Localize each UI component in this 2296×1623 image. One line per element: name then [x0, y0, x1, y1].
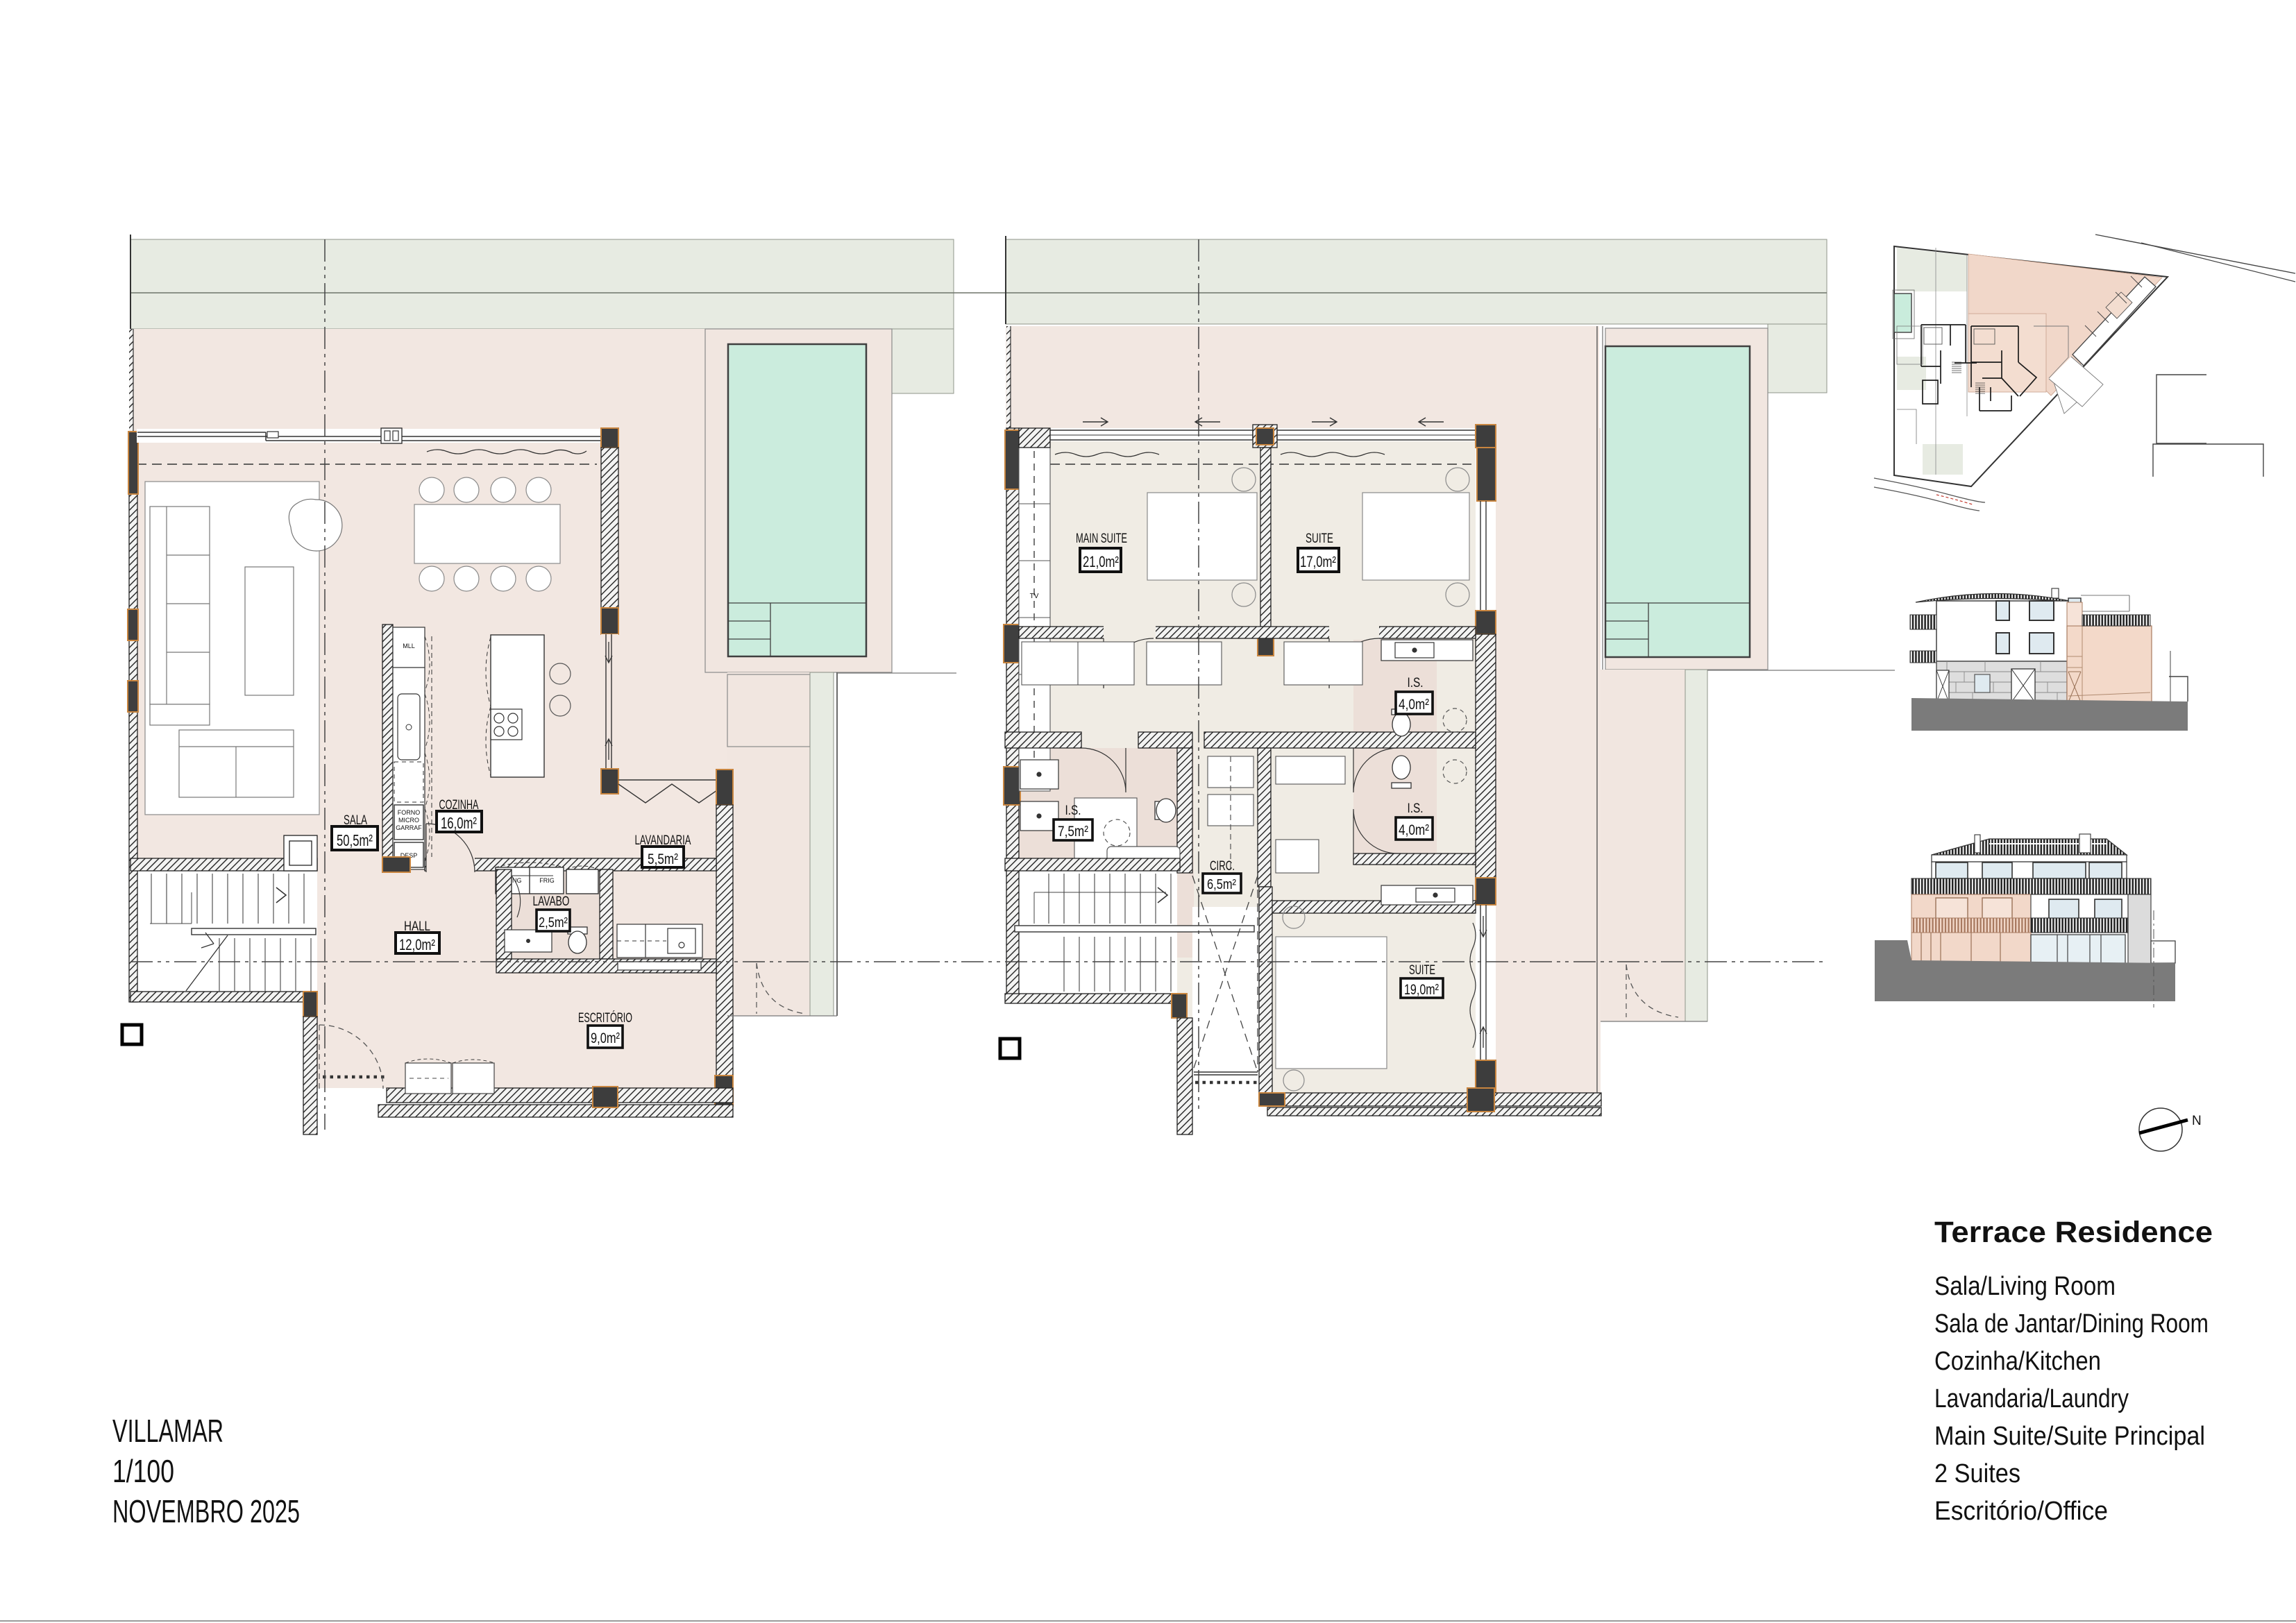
svg-text:12,0m²: 12,0m² [399, 936, 435, 953]
svg-text:ESCRITÓRIO: ESCRITÓRIO [578, 1010, 632, 1026]
svg-text:19,0m²: 19,0m² [1404, 982, 1439, 998]
svg-text:SUITE: SUITE [1306, 531, 1333, 546]
svg-text:I.S.: I.S. [1065, 804, 1081, 818]
svg-text:SUITE: SUITE [1409, 962, 1435, 978]
svg-text:17,0m²: 17,0m² [1300, 553, 1336, 570]
svg-text:7,5m²: 7,5m² [1058, 824, 1088, 840]
svg-text:MAIN SUITE: MAIN SUITE [1076, 531, 1127, 546]
svg-text:9,0m²: 9,0m² [591, 1030, 620, 1046]
svg-text:FRIG: FRIG [539, 877, 555, 884]
svg-text:Sala/Living Room: Sala/Living Room [1934, 1272, 2116, 1301]
svg-text:21,0m²: 21,0m² [1083, 553, 1119, 570]
svg-text:TV: TV [1030, 593, 1039, 600]
svg-text:FORNO: FORNO [398, 809, 421, 816]
svg-text:16,0m²: 16,0m² [441, 814, 477, 832]
svg-text:2 Suites: 2 Suites [1934, 1459, 2020, 1488]
svg-text:I.S.: I.S. [1408, 676, 1424, 690]
svg-text:Escritório/Office: Escritório/Office [1934, 1497, 2108, 1526]
svg-text:I.S.: I.S. [1408, 801, 1424, 816]
svg-text:NOVEMBRO 2025: NOVEMBRO 2025 [112, 1493, 300, 1529]
svg-text:4,0m²: 4,0m² [1399, 697, 1429, 713]
svg-text:5,5m²: 5,5m² [648, 851, 678, 867]
svg-text:50,5m²: 50,5m² [337, 831, 373, 849]
svg-text:CIRC.: CIRC. [1210, 859, 1235, 874]
svg-text:VILLAMAR: VILLAMAR [112, 1413, 223, 1449]
svg-text:2,5m²: 2,5m² [539, 915, 568, 931]
svg-text:Terrace Residence: Terrace Residence [1934, 1216, 2213, 1249]
svg-text:Cozinha/Kitchen: Cozinha/Kitchen [1934, 1347, 2101, 1376]
svg-text:1/100: 1/100 [112, 1453, 174, 1489]
svg-text:Main Suite/Suite Principal: Main Suite/Suite Principal [1934, 1422, 2205, 1451]
svg-text:Sala de Jantar/Dining Room: Sala de Jantar/Dining Room [1934, 1309, 2209, 1339]
svg-text:6,5m²: 6,5m² [1207, 877, 1236, 892]
svg-text:4,0m²: 4,0m² [1399, 822, 1429, 838]
svg-text:MICRO: MICRO [398, 817, 419, 824]
svg-text:MLL: MLL [403, 643, 415, 649]
svg-text:LAVABO: LAVABO [533, 894, 570, 909]
svg-text:GARRAF: GARRAF [396, 824, 422, 831]
svg-text:Lavandaria/Laundry: Lavandaria/Laundry [1934, 1384, 2129, 1413]
svg-text:N: N [2192, 1114, 2202, 1128]
